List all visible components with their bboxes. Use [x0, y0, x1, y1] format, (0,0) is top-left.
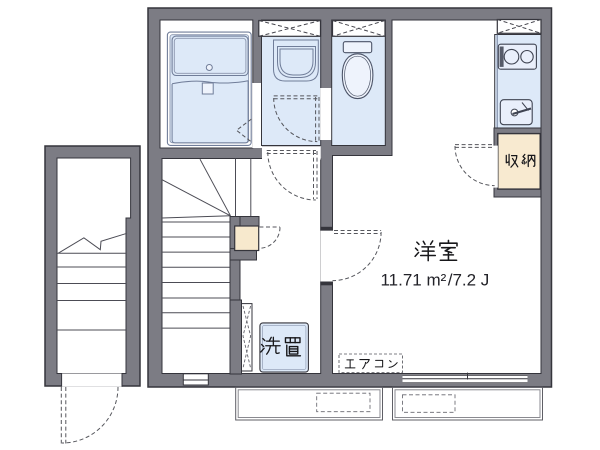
svg-text:11.71 m² /7.2 J: 11.71 m² /7.2 J: [380, 271, 489, 290]
